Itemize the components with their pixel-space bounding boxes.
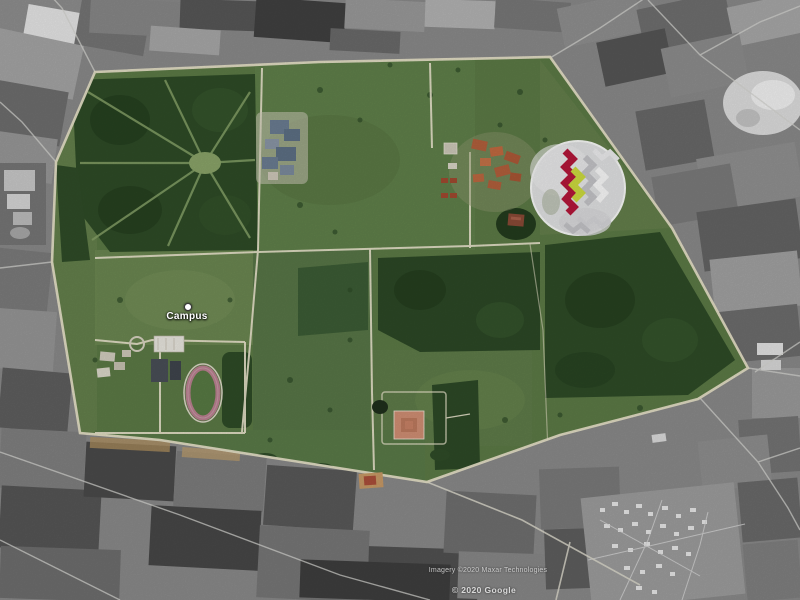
satellite-map[interactable]: Campus Imagery ©2020 Maxar Technologies … — [0, 0, 800, 600]
photo-grain-overlay — [0, 0, 800, 600]
campus-placemark-icon[interactable] — [184, 303, 192, 311]
map-canvas[interactable] — [0, 0, 800, 600]
